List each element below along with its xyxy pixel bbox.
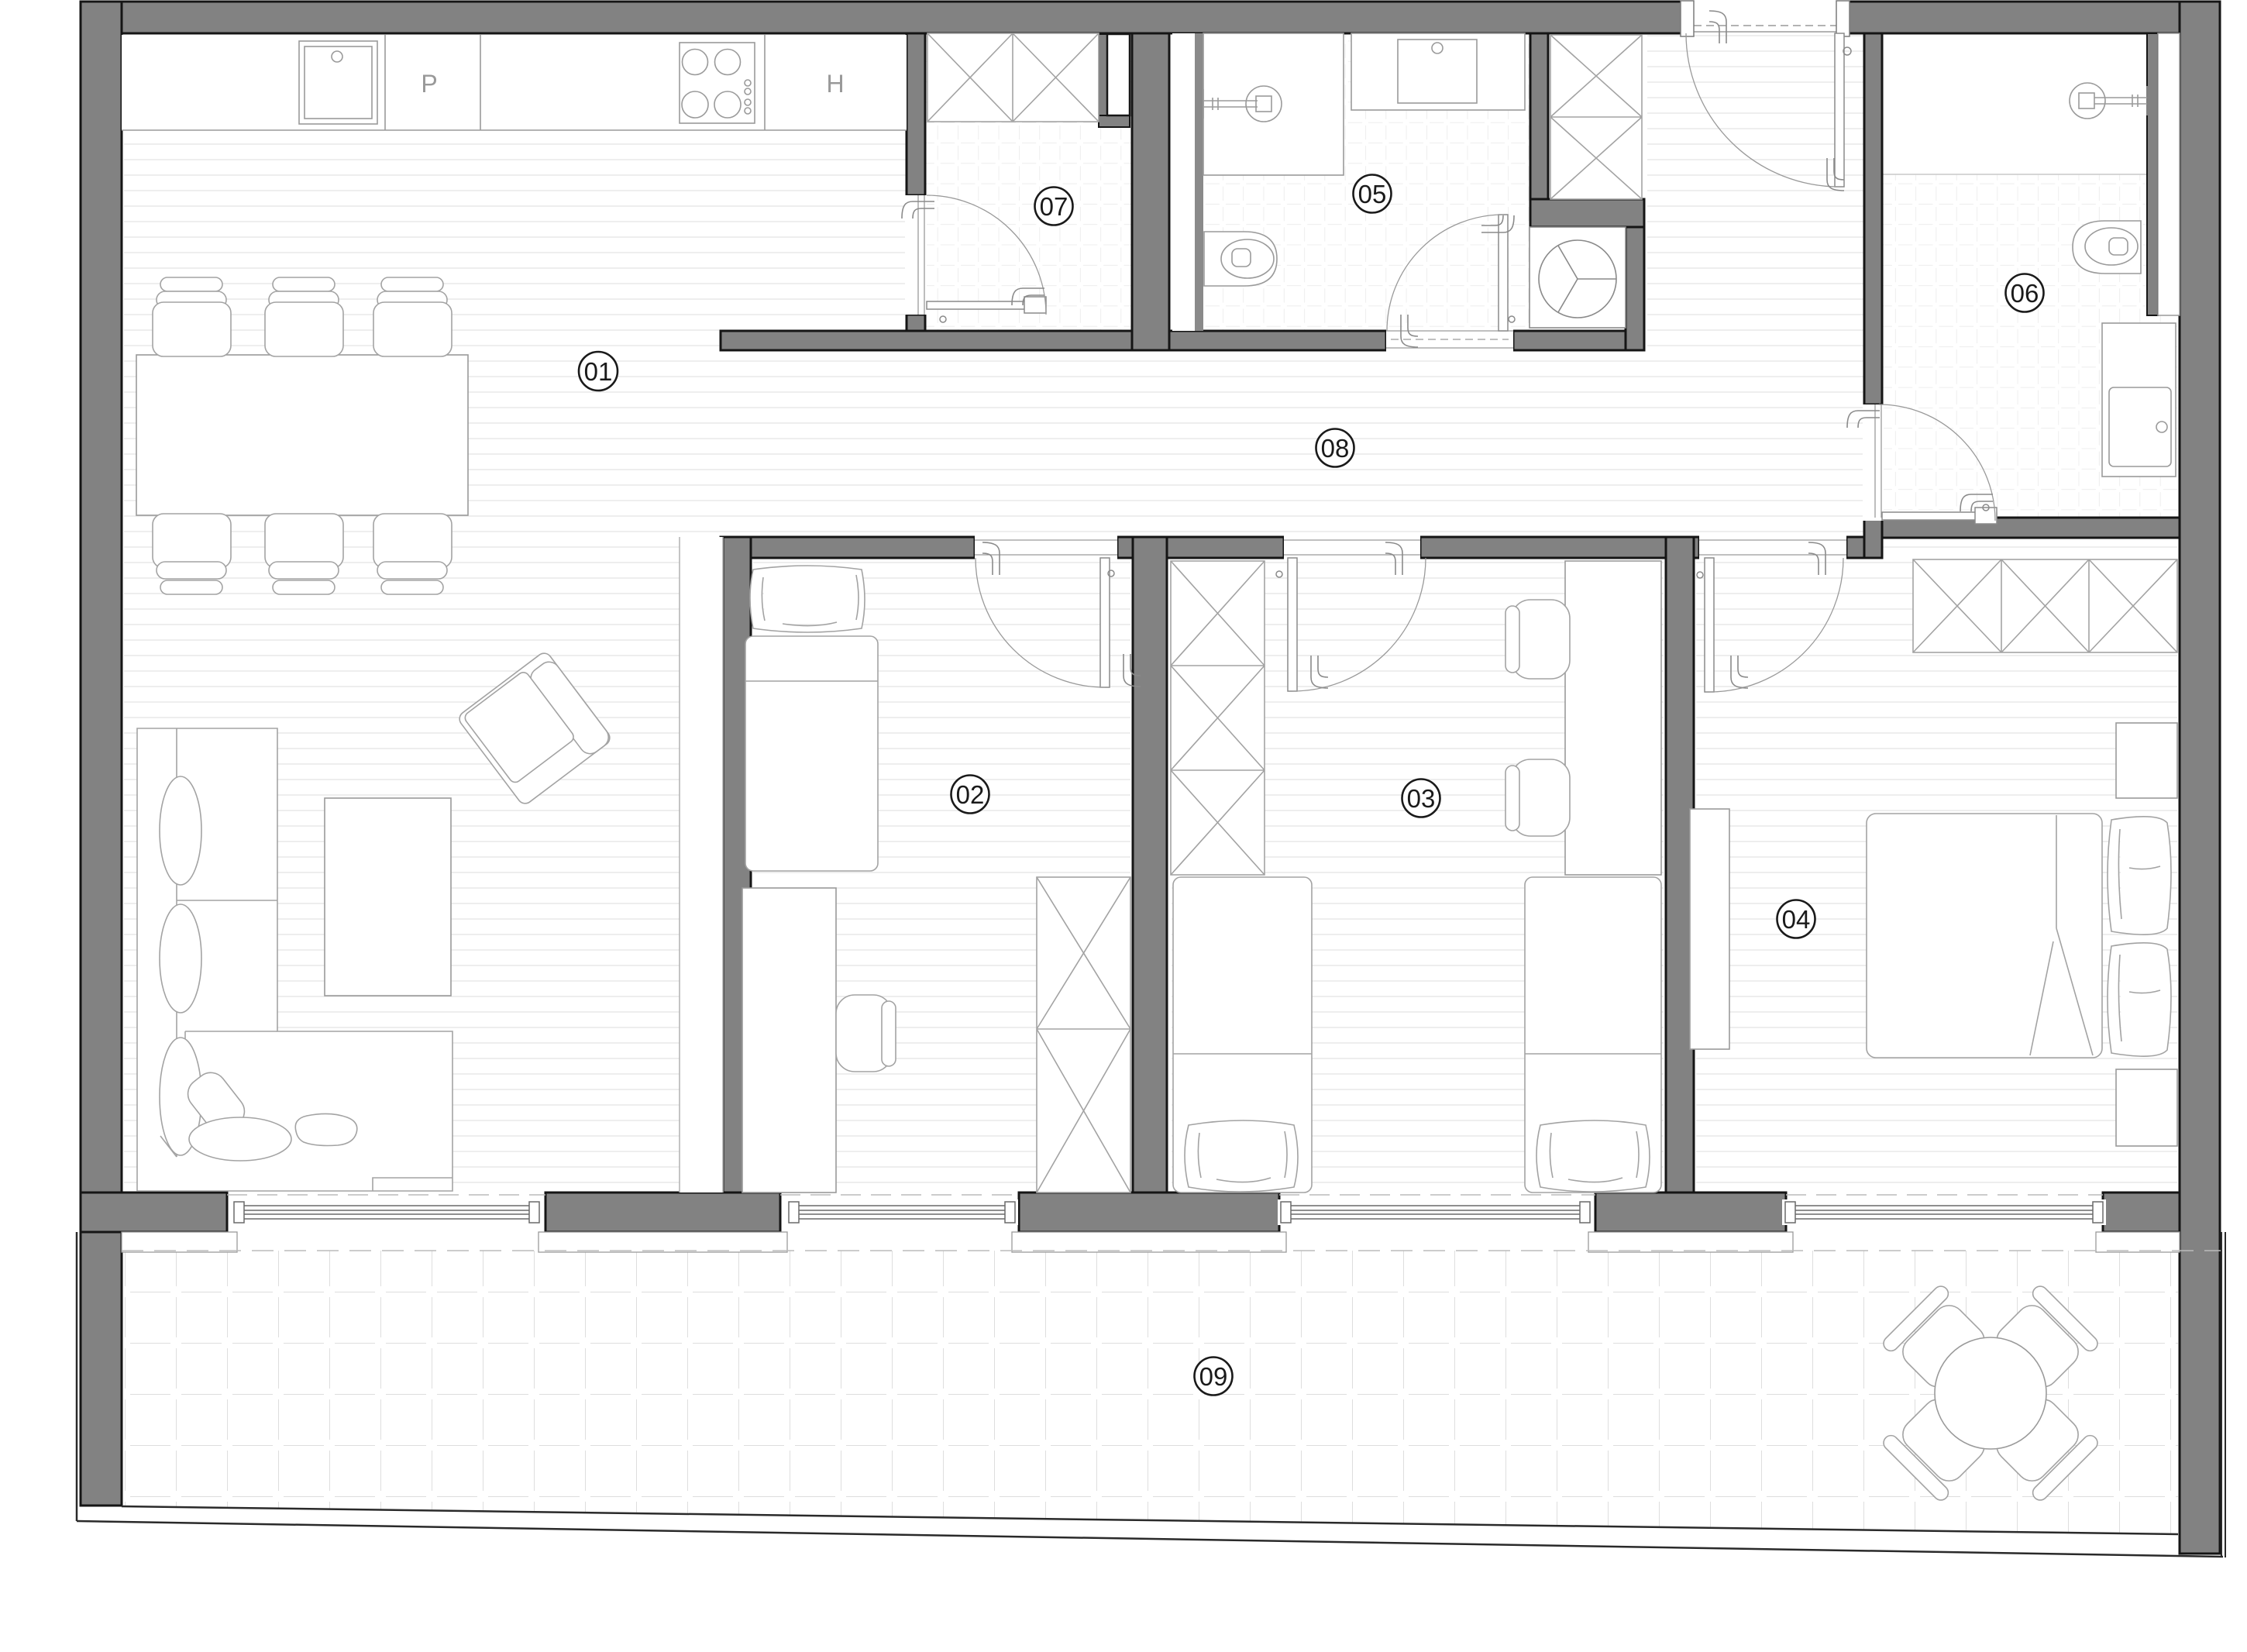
svg-text:04: 04 [1782,905,1811,934]
svg-text:07: 07 [1040,192,1068,221]
svg-text:03: 03 [1407,784,1436,813]
svg-text:05: 05 [1358,180,1387,208]
svg-text:06: 06 [2011,279,2039,308]
svg-text:01: 01 [584,357,613,386]
svg-text:H: H [826,70,844,98]
svg-text:P: P [421,70,437,98]
svg-text:09: 09 [1199,1362,1228,1391]
svg-text:02: 02 [956,780,985,809]
svg-text:08: 08 [1321,434,1350,463]
